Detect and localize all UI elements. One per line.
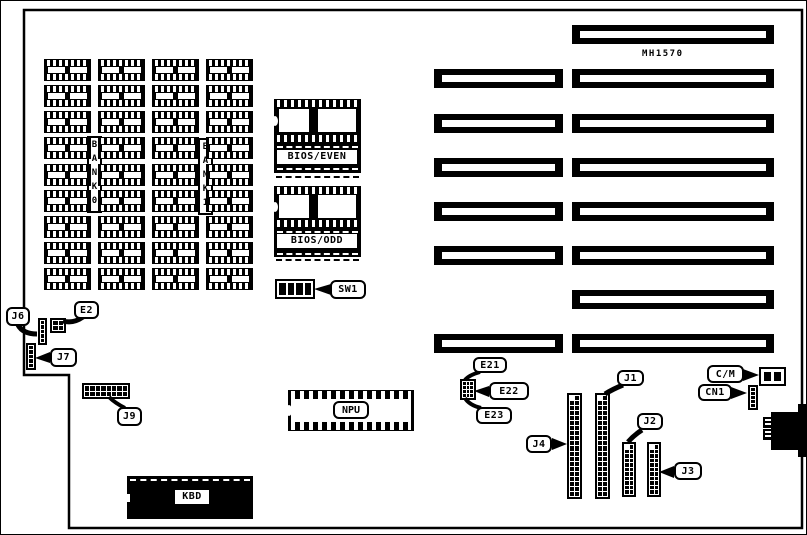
- connector-pin: [598, 411, 602, 415]
- expansion-slot: [434, 246, 563, 265]
- connector-pin: [575, 416, 579, 420]
- expansion-slot: [572, 202, 774, 221]
- connector-pin: [305, 283, 312, 295]
- j6-connector: [38, 318, 47, 345]
- connector-pin: [96, 392, 100, 397]
- socket-dash: [277, 146, 358, 148]
- memory-chip: [152, 242, 199, 264]
- connector-pin: [603, 436, 607, 440]
- connector-pin: [90, 386, 94, 391]
- socket-dash: [277, 168, 358, 170]
- memory-chip: [44, 216, 91, 238]
- connector-pin: [603, 431, 607, 435]
- connector-pin: [467, 382, 470, 385]
- connector-pin: [575, 426, 579, 430]
- connector-pin: [603, 467, 607, 471]
- expansion-slot: [572, 246, 774, 265]
- pin-comb: [277, 100, 358, 107]
- connector-pin: [603, 416, 607, 420]
- connector-pin: [598, 472, 602, 476]
- connector-pin: [603, 452, 607, 456]
- connector-pin: [655, 454, 659, 458]
- connector-pin: [467, 394, 470, 397]
- connector-pin: [625, 463, 629, 467]
- connector-pin: [751, 396, 755, 399]
- connector-pin: [470, 394, 473, 397]
- memory-chip: [206, 242, 253, 264]
- npu-label: NPU: [333, 401, 369, 419]
- connector-pin: [467, 386, 470, 389]
- connector-pin: [463, 394, 466, 397]
- din-pin-block: [763, 417, 773, 428]
- chip-notch: [272, 202, 278, 212]
- connector-pin: [570, 421, 574, 425]
- connector-pin: [655, 477, 659, 481]
- memory-chip: [152, 164, 199, 186]
- j7-arrow: [35, 352, 50, 363]
- connector-pin: [575, 467, 579, 471]
- din-pin-block: [763, 429, 773, 440]
- connector-pin: [751, 400, 755, 403]
- sw1-callout: SW1: [330, 280, 366, 299]
- memory-chip: [206, 85, 253, 107]
- connector-pin: [655, 468, 659, 472]
- cn1-callout: CN1: [698, 384, 732, 401]
- connector-pin: [598, 431, 602, 435]
- connector-pin: [655, 481, 659, 485]
- connector-pin: [470, 386, 473, 389]
- eprom-window: [279, 109, 309, 132]
- j6-pointer: [18, 325, 37, 334]
- connector-pin: [603, 446, 607, 450]
- board-title: MH1570: [642, 49, 684, 59]
- memory-chip: [152, 85, 199, 107]
- connector-pin: [650, 463, 654, 467]
- connector-pin: [603, 421, 607, 425]
- connector-pin: [41, 334, 44, 337]
- connector-pin: [575, 477, 579, 481]
- connector-pin: [470, 390, 473, 393]
- connector-pin: [570, 492, 574, 496]
- e22-arrow: [474, 386, 489, 397]
- kbd-label: KBD: [175, 490, 209, 504]
- expansion-slot: [572, 69, 774, 88]
- connector-pin: [570, 457, 574, 461]
- memory-chip: [206, 190, 253, 212]
- connector-pin: [85, 392, 89, 397]
- connector-pin: [603, 492, 607, 496]
- memory-chip: [44, 137, 91, 159]
- memory-chip: [44, 268, 91, 290]
- connector-pin: [29, 350, 33, 353]
- expansion-slot: [434, 158, 563, 177]
- connector-pin: [53, 326, 58, 330]
- connector-pin: [603, 401, 607, 405]
- connector-pin: [598, 426, 602, 430]
- connector-pin: [774, 372, 781, 381]
- memory-chip: [98, 190, 145, 212]
- connector-pin: [85, 386, 89, 391]
- memory-chip: [98, 137, 145, 159]
- connector-pin: [655, 459, 659, 463]
- e2-jumper: [50, 318, 66, 333]
- j1-callout: J1: [617, 370, 644, 386]
- connector-pin: [650, 468, 654, 472]
- j9-connector: [82, 383, 130, 399]
- connector-pin: [112, 386, 116, 391]
- connector-pin: [598, 467, 602, 471]
- pin-comb: [277, 220, 358, 227]
- connector-pin: [101, 386, 105, 391]
- memory-chip: [98, 59, 145, 81]
- npu-socket: NPU: [288, 390, 414, 431]
- connector-pin: [570, 482, 574, 486]
- expansion-slot: [434, 69, 563, 88]
- pin-comb: [291, 391, 411, 399]
- connector-pin: [630, 454, 634, 458]
- connector-pin: [625, 468, 629, 472]
- connector-pin: [630, 472, 634, 476]
- e21-callout: E21: [473, 357, 507, 373]
- connector-pin: [625, 472, 629, 476]
- connector-pin: [655, 486, 659, 490]
- connector-pin: [29, 355, 33, 358]
- connector-pin: [41, 321, 44, 324]
- connector-pin: [603, 462, 607, 466]
- connector-pin: [575, 436, 579, 440]
- memory-chip: [206, 268, 253, 290]
- connector-pin: [650, 486, 654, 490]
- connector-pin: [570, 462, 574, 466]
- socket-outline-dash: [276, 176, 359, 178]
- connector-pin: [630, 477, 634, 481]
- connector-pin: [570, 467, 574, 471]
- j4-callout: J4: [526, 435, 552, 453]
- connector-pin: [630, 490, 634, 494]
- connector-pin: [570, 406, 574, 410]
- connector-pin: [575, 401, 579, 405]
- connector-pin: [570, 426, 574, 430]
- connector-pin: [598, 452, 602, 456]
- connector-pin: [470, 382, 473, 385]
- memory-chip: [44, 111, 91, 133]
- memory-chip: [44, 59, 91, 81]
- connector-pin: [630, 445, 634, 449]
- memory-chip: [98, 268, 145, 290]
- memory-chip: [44, 190, 91, 212]
- connector-pin: [598, 416, 602, 420]
- connector-pin: [603, 426, 607, 430]
- connector-pin: [463, 382, 466, 385]
- connector-pin: [570, 411, 574, 415]
- connector-pin: [575, 462, 579, 466]
- e21-e23-jumper-block: [460, 379, 476, 400]
- cn1-connector: [748, 385, 758, 410]
- connector-pin: [117, 386, 121, 391]
- socket-dash: [277, 231, 358, 233]
- expansion-slot: [572, 158, 774, 177]
- memory-chip: [206, 111, 253, 133]
- connector-pin: [625, 477, 629, 481]
- connector-pin: [598, 421, 602, 425]
- memory-chip: [152, 190, 199, 212]
- connector-pin: [59, 326, 64, 330]
- connector-pin: [598, 396, 602, 400]
- connector-pin: [650, 477, 654, 481]
- connector-pin: [575, 492, 579, 496]
- j3-arrow: [659, 466, 674, 478]
- connector-pin: [101, 392, 105, 397]
- connector-pin: [603, 457, 607, 461]
- connector-pin: [570, 446, 574, 450]
- motherboard-diagram: B A N K 0 B A N K 1 BIOS/EVEN BIOS/ODD M…: [0, 0, 807, 535]
- connector-pin: [655, 463, 659, 467]
- e23-callout: E23: [476, 407, 512, 424]
- connector-pin: [41, 325, 44, 328]
- connector-pin: [598, 406, 602, 410]
- connector-pin: [603, 441, 607, 445]
- connector-pin: [598, 436, 602, 440]
- connector-pin: [296, 283, 303, 295]
- connector-pin: [107, 386, 111, 391]
- connector-pin: [575, 411, 579, 415]
- connector-pin: [107, 392, 111, 397]
- j6-callout: J6: [6, 307, 30, 326]
- connector-pin: [117, 392, 121, 397]
- connector-pin: [96, 386, 100, 391]
- sw1-dip-switch: [275, 279, 315, 299]
- j3-callout: J3: [674, 462, 702, 480]
- connector-pin: [29, 346, 33, 349]
- connector-pin: [598, 457, 602, 461]
- expansion-slot: [434, 114, 563, 133]
- connector-pin: [650, 450, 654, 454]
- connector-pin: [575, 441, 579, 445]
- connector-pin: [29, 359, 33, 362]
- j7-connector: [26, 343, 36, 370]
- memory-chip: [98, 164, 145, 186]
- connector-pin: [90, 392, 94, 397]
- connector-pin: [650, 490, 654, 494]
- connector-pin: [598, 446, 602, 450]
- connector-pin: [603, 482, 607, 486]
- connector-pin: [625, 445, 629, 449]
- connector-pin: [29, 364, 33, 367]
- connector-pin: [655, 445, 659, 449]
- kbd-chip: KBD: [127, 476, 253, 519]
- pin-comb: [277, 135, 358, 142]
- connector-pin: [467, 390, 470, 393]
- expansion-slot: [572, 290, 774, 309]
- connector-pin: [570, 487, 574, 491]
- connector-pin: [123, 392, 127, 397]
- connector-pin: [630, 468, 634, 472]
- socket-dash: [277, 253, 358, 255]
- connector-pin: [575, 472, 579, 476]
- connector-pin: [570, 416, 574, 420]
- j1-connector: [595, 393, 610, 499]
- expansion-slot: [572, 334, 774, 353]
- connector-pin: [570, 477, 574, 481]
- connector-pin: [603, 472, 607, 476]
- connector-pin: [463, 386, 466, 389]
- connector-pin: [603, 487, 607, 491]
- memory-chip: [98, 242, 145, 264]
- memory-chip: [206, 59, 253, 81]
- connector-pin: [288, 283, 295, 295]
- bios-even-chip: BIOS/EVEN: [274, 99, 361, 173]
- connector-pin: [650, 459, 654, 463]
- connector-pin: [575, 457, 579, 461]
- connector-pin: [603, 396, 607, 400]
- cm-callout: C/M: [707, 365, 744, 383]
- memory-chip: [44, 164, 91, 186]
- connector-pin: [650, 472, 654, 476]
- connector-pin: [53, 321, 58, 325]
- connector-pin: [598, 492, 602, 496]
- j2-callout: J2: [637, 413, 663, 430]
- connector-pin: [630, 463, 634, 467]
- connector-pin: [655, 490, 659, 494]
- connector-pin: [279, 283, 286, 295]
- connector-pin: [463, 390, 466, 393]
- cn1-arrow: [731, 387, 747, 399]
- bios-odd-label: BIOS/ODD: [277, 234, 357, 248]
- memory-chip: [44, 85, 91, 107]
- bios-even-label: BIOS/EVEN: [277, 150, 357, 164]
- memory-chip: [44, 242, 91, 264]
- memory-chip: [98, 85, 145, 107]
- j2-connector: [622, 442, 636, 497]
- connector-pin: [598, 482, 602, 486]
- connector-pin: [625, 490, 629, 494]
- connector-pin: [630, 459, 634, 463]
- keyboard-din-connector: [771, 404, 807, 457]
- pin-comb: [277, 187, 358, 194]
- connector-pin: [598, 477, 602, 481]
- connector-pin: [570, 452, 574, 456]
- connector-pin: [598, 441, 602, 445]
- connector-pin: [570, 441, 574, 445]
- connector-pin: [751, 388, 755, 391]
- connector-pin: [650, 481, 654, 485]
- connector-pin: [751, 404, 755, 407]
- j4-connector: [567, 393, 582, 499]
- e2-callout: E2: [74, 301, 99, 319]
- cm-arrow: [743, 369, 759, 381]
- cm-jumper: [759, 367, 786, 386]
- connector-pin: [625, 481, 629, 485]
- expansion-slot: [434, 202, 563, 221]
- connector-pin: [41, 330, 44, 333]
- connector-pin: [625, 486, 629, 490]
- connector-pin: [625, 454, 629, 458]
- connector-pin: [570, 401, 574, 405]
- connector-pin: [625, 459, 629, 463]
- connector-pin: [59, 321, 64, 325]
- pin-comb: [291, 422, 411, 430]
- memory-chip: [152, 59, 199, 81]
- connector-pin: [41, 339, 44, 342]
- connector-pin: [655, 450, 659, 454]
- j4-arrow: [552, 438, 567, 450]
- connector-pin: [751, 392, 755, 395]
- connector-pin: [630, 481, 634, 485]
- memory-chip: [206, 164, 253, 186]
- expansion-slot: [434, 334, 563, 353]
- connector-pin: [603, 477, 607, 481]
- chip-notch: [272, 116, 278, 126]
- connector-pin: [575, 431, 579, 435]
- connector-pin: [603, 411, 607, 415]
- j9-callout: J9: [117, 407, 142, 426]
- connector-pin: [570, 396, 574, 400]
- j7-callout: J7: [50, 348, 77, 367]
- connector-pin: [575, 396, 579, 400]
- connector-pin: [598, 401, 602, 405]
- connector-pin: [575, 446, 579, 450]
- memory-chip: [152, 268, 199, 290]
- connector-pin: [570, 472, 574, 476]
- expansion-slot: [572, 25, 774, 44]
- chip-notch: [127, 494, 130, 502]
- connector-pin: [598, 487, 602, 491]
- memory-chip: [152, 216, 199, 238]
- memory-chip: [206, 137, 253, 159]
- connector-pin: [112, 392, 116, 397]
- expansion-slot: [572, 114, 774, 133]
- memory-chip: [206, 216, 253, 238]
- memory-chip: [98, 216, 145, 238]
- eprom-window: [318, 109, 356, 132]
- connector-pin: [603, 406, 607, 410]
- connector-pin: [625, 450, 629, 454]
- connector-pin: [575, 487, 579, 491]
- bios-odd-chip: BIOS/ODD: [274, 186, 361, 257]
- sw1-arrow: [314, 284, 331, 295]
- chip-dash: [130, 479, 250, 481]
- connector-pin: [575, 452, 579, 456]
- memory-chip: [98, 111, 145, 133]
- connector-pin: [575, 482, 579, 486]
- connector-pin: [575, 406, 579, 410]
- connector-pin: [570, 431, 574, 435]
- j2-pointer: [628, 430, 642, 442]
- connector-pin: [630, 450, 634, 454]
- eprom-window: [279, 195, 309, 218]
- memory-chip: [152, 137, 199, 159]
- connector-pin: [655, 472, 659, 476]
- socket-outline-dash: [276, 259, 359, 261]
- connector-pin: [650, 445, 654, 449]
- eprom-window: [318, 195, 356, 218]
- j3-connector: [647, 442, 661, 497]
- connector-pin: [570, 436, 574, 440]
- connector-pin: [123, 386, 127, 391]
- connector-pin: [598, 462, 602, 466]
- connector-pin: [764, 372, 771, 381]
- connector-pin: [630, 486, 634, 490]
- chip-notch: [286, 405, 292, 416]
- memory-chip: [152, 111, 199, 133]
- connector-pin: [650, 454, 654, 458]
- e22-callout: E22: [489, 382, 529, 400]
- connector-pin: [575, 421, 579, 425]
